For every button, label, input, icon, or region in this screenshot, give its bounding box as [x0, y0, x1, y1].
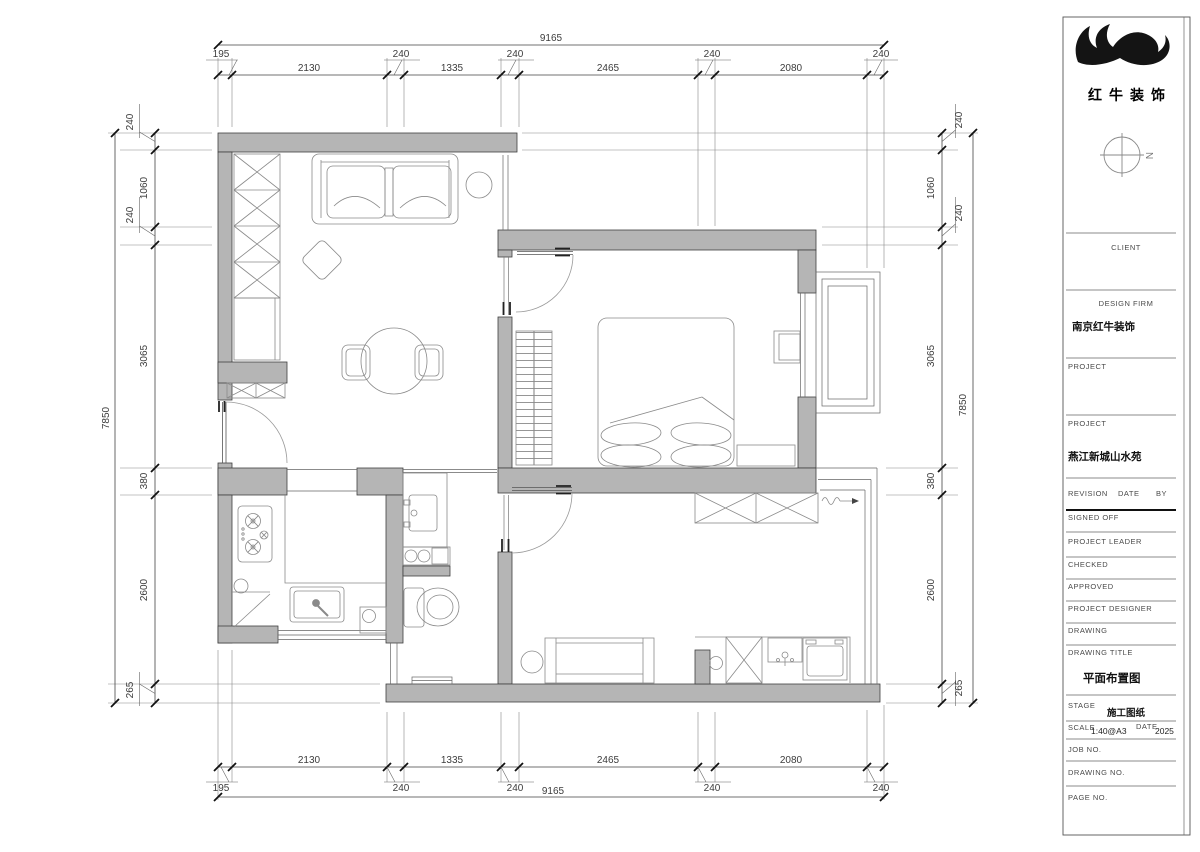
bottomroom-door: [502, 486, 572, 553]
page-no-label: PAGE NO.: [1068, 793, 1108, 802]
curtain-symbol: [822, 498, 859, 505]
wardrobe-bottomroom: [695, 493, 818, 523]
wall-bedroom-east-upper: [798, 250, 816, 293]
dim-right-265: 265: [954, 679, 965, 696]
wall-kitchen-north-east: [357, 468, 403, 495]
window-bath-west: [391, 643, 398, 684]
bath-vanity: [403, 473, 447, 547]
wall-kitchen-south: [218, 626, 278, 643]
dim-left-240a: 240: [125, 113, 136, 130]
dim-right-240b: 240: [954, 204, 965, 221]
dim-bottom-2130: 2130: [298, 755, 321, 766]
bed: [598, 318, 734, 468]
bed-foot-bench: [737, 445, 795, 466]
scale-value: 1:40@A3: [1091, 726, 1127, 736]
dim-bottom-1335: 1335: [441, 755, 464, 766]
wall-bedroom-west-sliver: [498, 250, 512, 257]
sofa: [312, 154, 458, 224]
dim-top-2130: 2130: [298, 63, 321, 74]
drawing-title-label: DRAWING TITLE: [1068, 648, 1133, 657]
project-leader-label: PROJECT LEADER: [1068, 537, 1142, 546]
kitchen-fixture: [360, 607, 386, 633]
blanket-fold: [610, 397, 734, 423]
window-bath-south: [412, 677, 452, 684]
dim-right-2600: 2600: [926, 578, 937, 601]
drawing-title: 平面布置图: [1083, 671, 1141, 685]
cabinet-living: [234, 298, 280, 360]
checked-label: CHECKED: [1068, 560, 1108, 569]
kitchen-doorway: [287, 470, 357, 492]
wall-hall-band: [218, 362, 287, 383]
bathroom-partition: [403, 470, 497, 473]
window-kitchen-south: [278, 629, 386, 641]
dining-chair-left: [342, 345, 370, 380]
title-block: 红牛装饰 N CLIENT DESIGN FIRM 南京红牛装饰 PROJECT…: [1063, 17, 1190, 835]
stage-label: STAGE: [1068, 701, 1095, 710]
job-no-label: JOB NO.: [1068, 745, 1102, 754]
design-firm-label: DESIGN FIRM: [1099, 299, 1154, 308]
dim-top-240b: 240: [507, 49, 524, 60]
dim-right-overall: 7850: [958, 393, 969, 416]
dim-bottom-240d: 240: [873, 783, 890, 794]
wall-kitchen-bath-divider: [386, 495, 403, 643]
wall-bedroom-east-lower: [798, 397, 816, 468]
dim-left-overall: 7850: [101, 406, 112, 429]
approved-label: APPROVED: [1068, 582, 1114, 591]
drawing-sheet: 9165 2130 1335 2465 2080 195 240 240 240…: [0, 0, 1200, 852]
side-table: [466, 172, 492, 198]
coffee-table: [301, 239, 343, 281]
wall-bottomroom-west: [498, 552, 512, 684]
washing-machine: [803, 638, 847, 680]
dim-bottom-195: 195: [213, 783, 230, 794]
dim-left-2600: 2600: [139, 578, 150, 601]
wall-kitchen-west: [218, 495, 232, 643]
dim-top-1335: 1335: [441, 63, 464, 74]
round-stool: [521, 651, 543, 673]
dim-left-380: 380: [139, 472, 150, 489]
dim-left-240b: 240: [125, 206, 136, 223]
kitchen-sink: [290, 587, 344, 622]
shoe-cabinet: [227, 383, 285, 398]
window-living-east: [503, 155, 508, 230]
kitchen-counter: [285, 495, 386, 583]
laundry-sink: [768, 638, 802, 666]
dim-right-240a: 240: [954, 111, 965, 128]
bench-sofa: [545, 638, 654, 683]
toilet: [404, 588, 459, 627]
dim-left-3065: 3065: [139, 344, 150, 367]
floor-plan-canvas: 9165 2130 1335 2465 2080 195 240 240 240…: [0, 0, 1200, 852]
wardrobe-living: [234, 154, 280, 298]
dim-top-240a: 240: [393, 49, 410, 60]
dim-top-2465: 2465: [597, 63, 620, 74]
project-label: PROJECT: [1068, 362, 1107, 371]
dim-bottom-overall: 9165: [542, 786, 565, 797]
revision-label: REVISION: [1068, 489, 1108, 498]
wall-bedroom-south: [498, 468, 816, 493]
design-firm-value: 南京红牛装饰: [1072, 320, 1135, 333]
dim-right-380: 380: [926, 472, 937, 489]
kitchen-drain: [234, 579, 248, 593]
dim-top-240c: 240: [704, 49, 721, 60]
kitchen-corner-counter: [232, 592, 270, 627]
drawing-label: DRAWING: [1068, 626, 1107, 635]
balcony-window-east: [816, 468, 877, 684]
entry-door: [219, 401, 287, 463]
stage-value: 施工图纸: [1107, 707, 1146, 719]
stove: [238, 506, 272, 562]
bedroom-door: [504, 249, 574, 316]
signed-off-label: SIGNED OFF: [1068, 513, 1119, 522]
north-label: N: [1143, 152, 1154, 159]
by-label: BY: [1156, 489, 1167, 498]
dim-left-265: 265: [125, 681, 136, 698]
wall-top: [218, 133, 517, 152]
dim-top-240d: 240: [873, 49, 890, 60]
dim-bottom-2080: 2080: [780, 755, 803, 766]
nightstand: [774, 331, 800, 363]
dining-table: [361, 328, 427, 394]
dim-right-1060: 1060: [926, 176, 937, 199]
wall-bottom: [386, 684, 880, 702]
dim-left-1060: 1060: [139, 176, 150, 199]
wall-stub-laundry: [695, 650, 710, 684]
dining-chair-right: [415, 345, 443, 380]
wall-kitchen-north-west: [218, 468, 287, 495]
radiator-rack: [516, 331, 552, 465]
bath-laundry-counter: [403, 547, 450, 576]
dim-top-overall: 9165: [540, 33, 563, 44]
company-name: 红牛装饰: [1088, 87, 1172, 104]
dim-bottom-240b: 240: [507, 783, 524, 794]
date-label: DATE: [1118, 489, 1139, 498]
dim-bottom-2465: 2465: [597, 755, 620, 766]
wall-bedroom-north: [498, 230, 816, 250]
project2-label: PROJECT: [1068, 419, 1107, 428]
dim-top-2080: 2080: [780, 63, 803, 74]
project-name: 燕江新城山水苑: [1068, 450, 1142, 463]
drawing-no-label: DRAWING NO.: [1068, 768, 1125, 777]
date-value: 2025: [1155, 726, 1174, 736]
dim-top-195: 195: [213, 49, 230, 60]
project-designer-label: PROJECT DESIGNER: [1068, 604, 1152, 613]
dim-bottom-240a: 240: [393, 783, 410, 794]
wall-bedroom-west: [498, 317, 512, 468]
client-label: CLIENT: [1111, 243, 1141, 252]
dim-right-3065: 3065: [926, 344, 937, 367]
dim-bottom-240c: 240: [704, 783, 721, 794]
